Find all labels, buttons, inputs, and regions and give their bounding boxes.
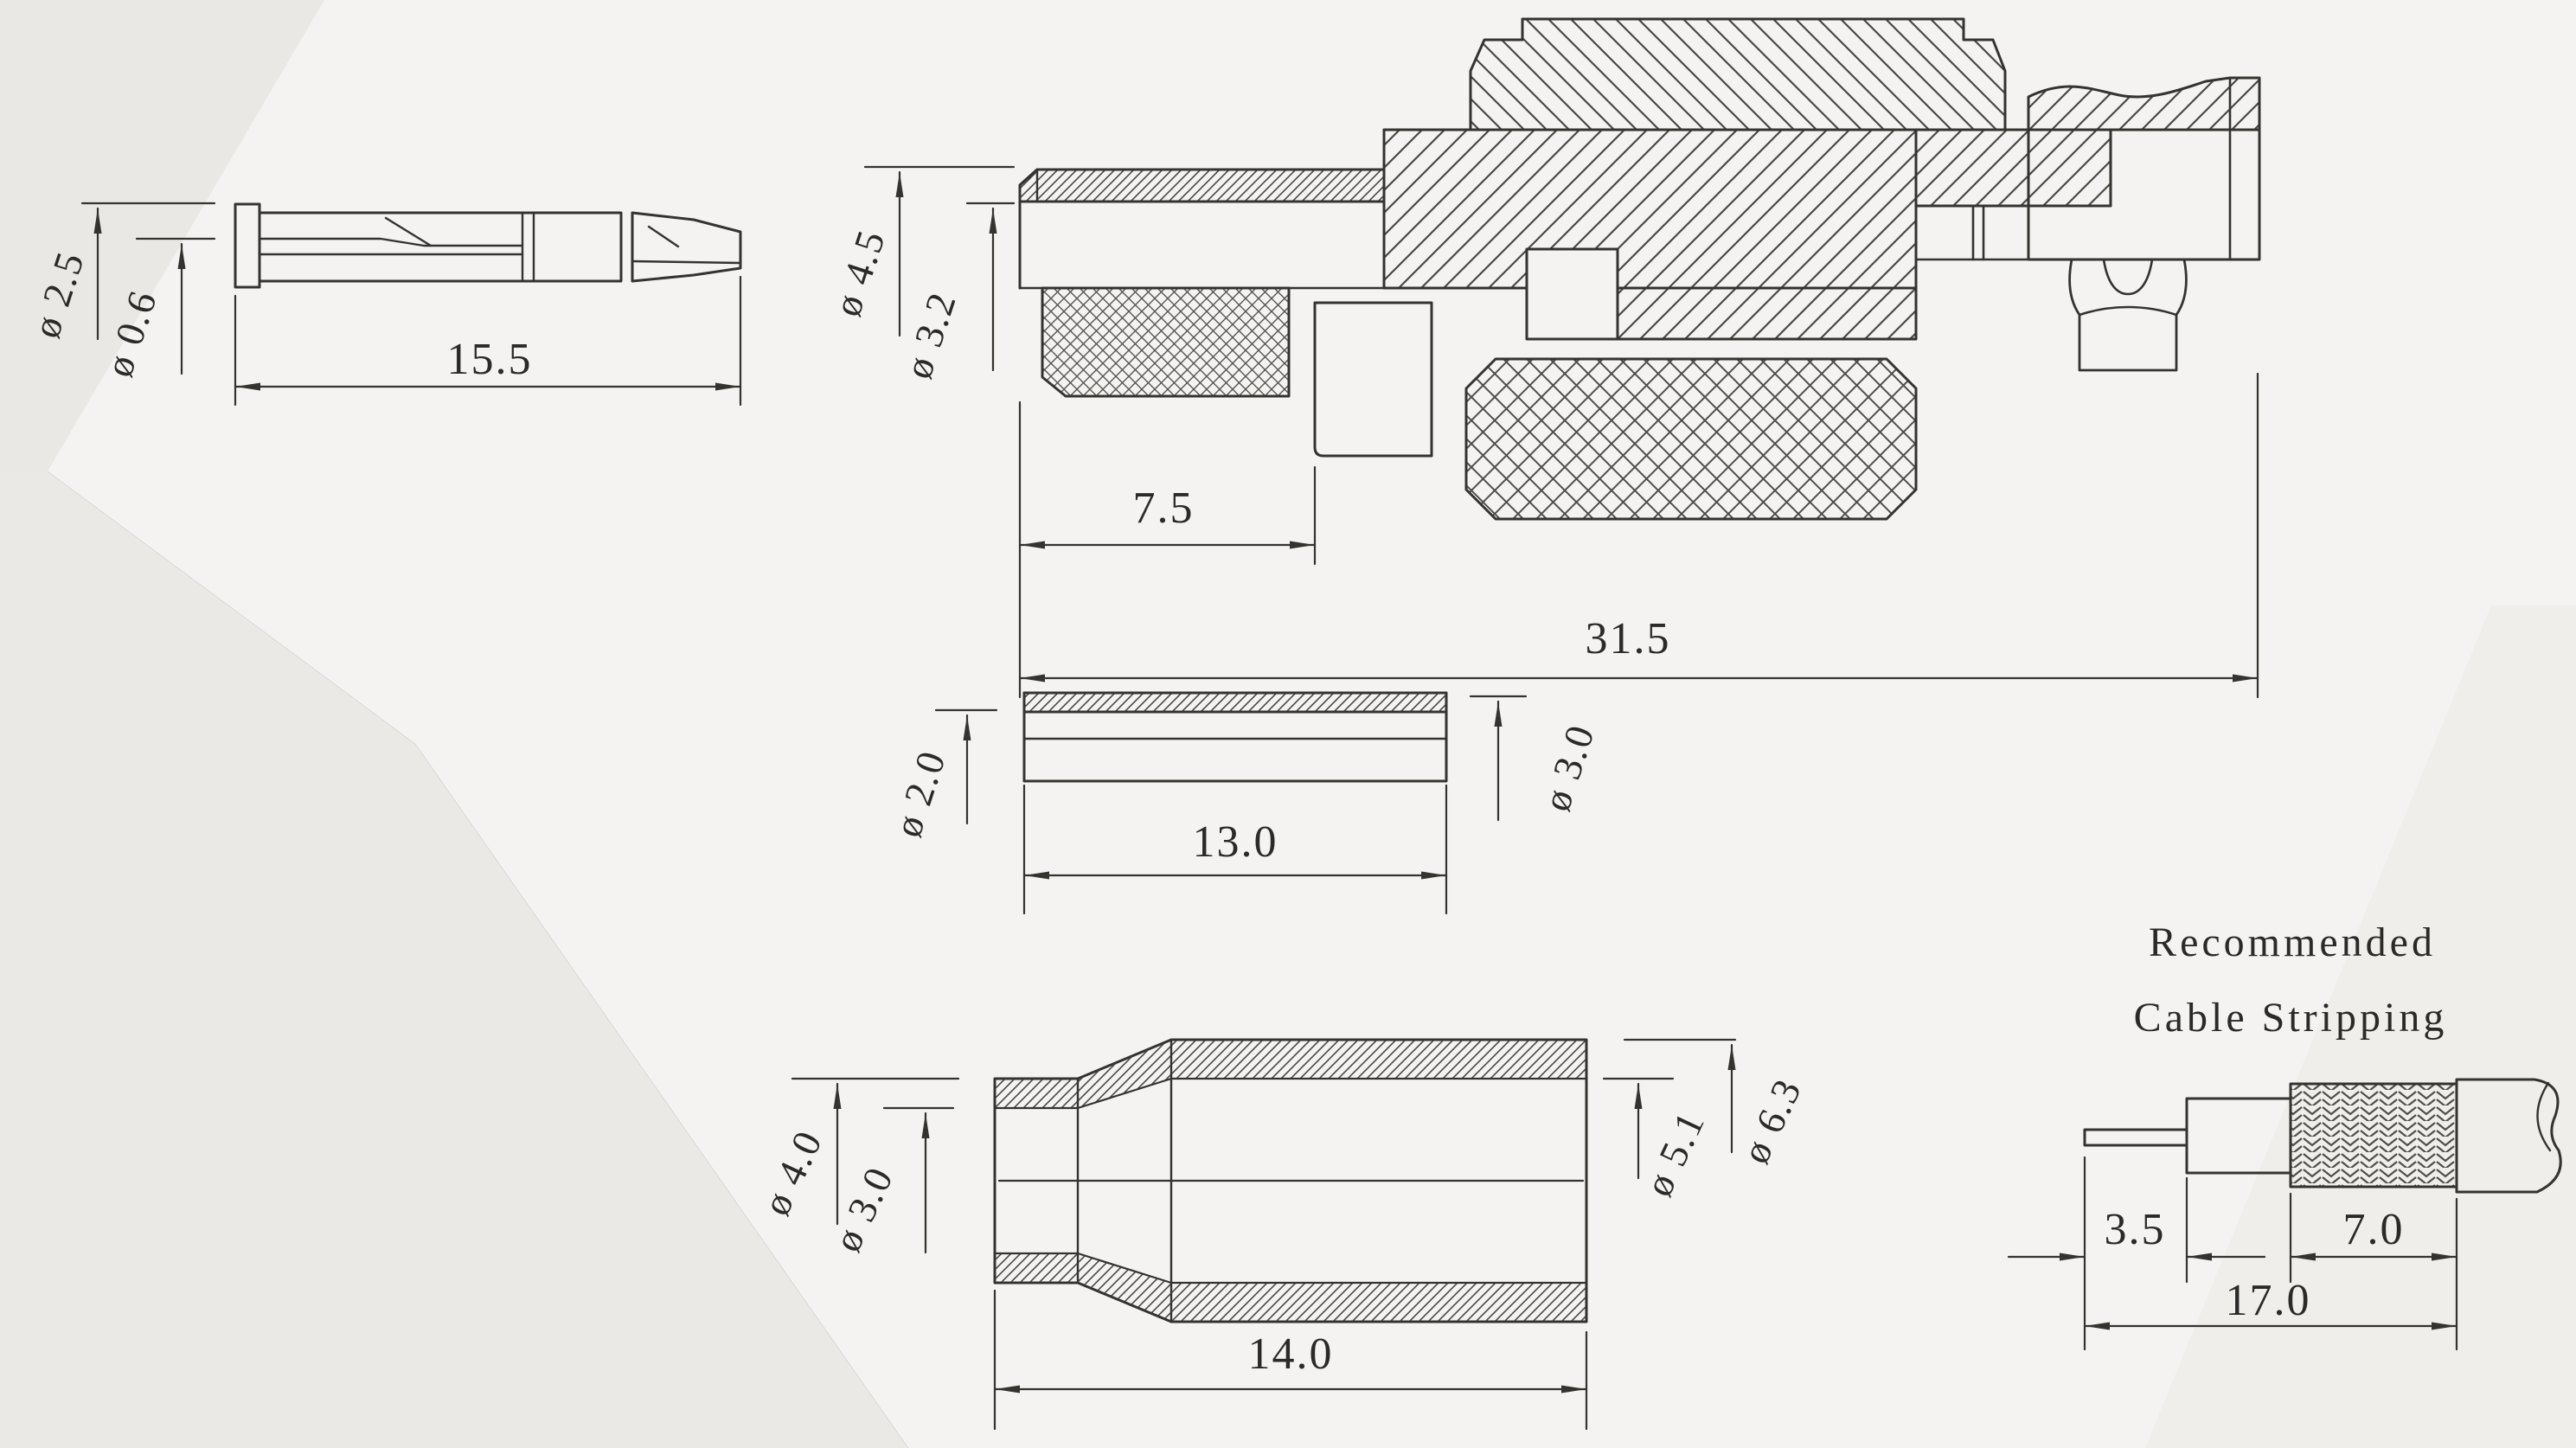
body-section-left	[1384, 130, 1916, 288]
sleeve-wall-section	[1020, 170, 1384, 202]
stripping-title-line1: Recommended	[2149, 919, 2436, 965]
ferrule-wall-section	[1024, 693, 1446, 712]
cable-braid	[2291, 1084, 2457, 1187]
stripping-inner-label: 3.5	[2105, 1205, 2166, 1254]
body-rear-length-label: 7.5	[1133, 484, 1195, 533]
cable-cavity	[1527, 249, 1618, 339]
scanned-drawing-page: ø 2.5 ø 0.6 15.5	[0, 0, 2576, 1448]
body-section-lower	[1618, 288, 1916, 339]
hex-flats-section	[1471, 19, 2005, 130]
rear-knurl-band	[1042, 288, 1289, 396]
coupling-nut-knurl	[1466, 359, 1916, 519]
body-section-right	[1916, 130, 2111, 206]
technical-drawing: ø 2.5 ø 0.6 15.5	[0, 0, 2576, 1448]
stripping-total-label: 17.0	[2226, 1276, 2311, 1325]
pin-length-label: 15.5	[447, 335, 533, 384]
body-total-length-label: 31.5	[1586, 614, 1671, 663]
stripping-title-line2: Cable Stripping	[2134, 995, 2448, 1041]
boot-length-label: 14.0	[1248, 1329, 1334, 1379]
ferrule-length-label: 13.0	[1193, 817, 1278, 867]
stripping-braid-label: 7.0	[2343, 1205, 2405, 1254]
